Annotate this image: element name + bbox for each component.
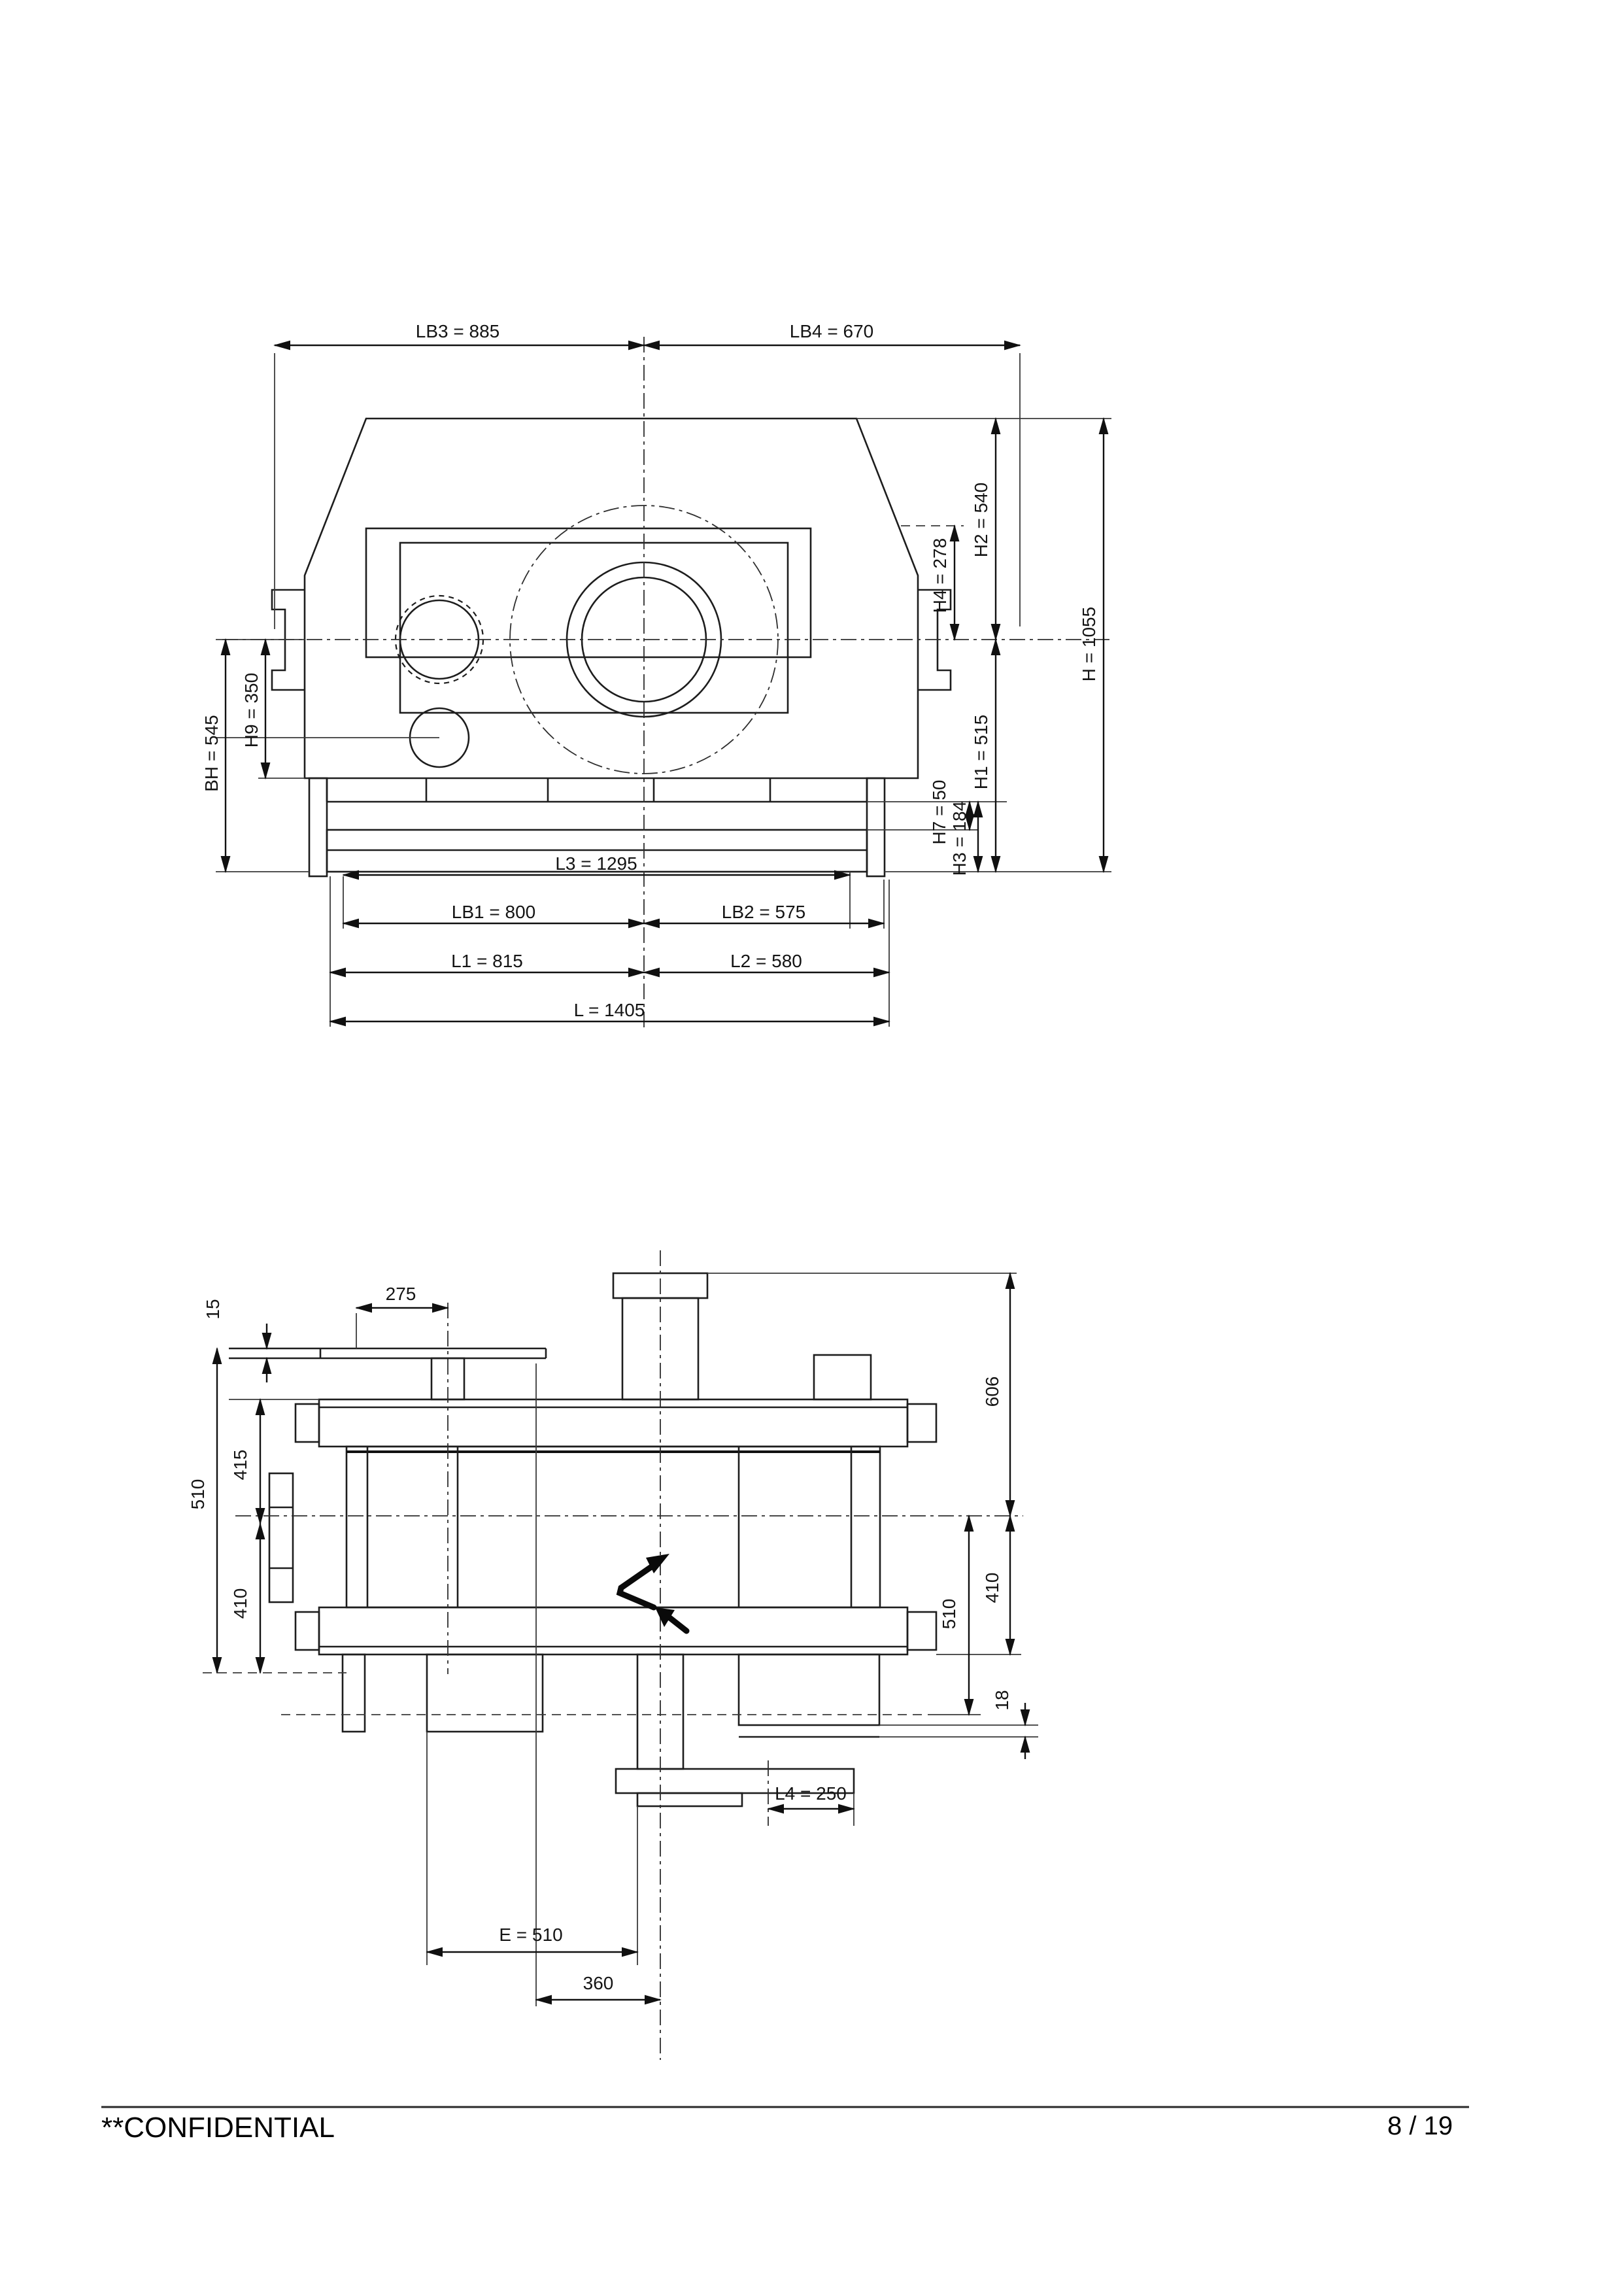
dim-bh-label: BH = 545 <box>201 715 222 792</box>
dim-h9-label: H9 = 350 <box>241 673 262 747</box>
plan-view: 275 15 510 415 410 606 410 510 18 L4 = 2… <box>188 1250 1038 2060</box>
rotation-arrow-icon <box>620 1554 686 1631</box>
plan-view-dimension-lines <box>217 1273 1025 2000</box>
dim-410-left-label: 410 <box>230 1588 250 1619</box>
left-bearing-cap <box>269 1473 293 1602</box>
dim-360-label: 360 <box>583 1973 614 1993</box>
page-number: 8 / 19 <box>1387 2112 1453 2140</box>
front-view-linework <box>216 337 1111 1032</box>
scanned-drawing-page: LB3 = 885 LB4 = 670 H4 = 278 H2 = 540 H1… <box>0 0 1624 2296</box>
dim-l3-label: L3 = 1295 <box>555 853 637 874</box>
dim-18-label: 18 <box>992 1690 1012 1710</box>
dim-l1-label: L1 = 815 <box>451 951 523 971</box>
plan-view-dimension-labels: 275 15 510 415 410 606 410 510 18 L4 = 2… <box>188 1284 1012 1993</box>
dim-15-label: 15 <box>203 1299 223 1319</box>
dim-h-label: H = 1055 <box>1079 607 1099 681</box>
dim-606-label: 606 <box>982 1377 1002 1407</box>
housing-outline <box>305 419 918 778</box>
plan-view-extension-lines <box>203 1313 1038 1737</box>
dim-l4-label: L4 = 250 <box>775 1783 847 1804</box>
dim-275-label: 275 <box>386 1284 416 1304</box>
dim-h7-label: H7 = 50 <box>929 780 949 845</box>
dim-e-label: E = 510 <box>499 1925 562 1945</box>
dim-h1-label: H1 = 515 <box>971 715 991 789</box>
dim-h2-label: H2 = 540 <box>971 483 991 557</box>
dim-l2-label: L2 = 580 <box>730 951 802 971</box>
dim-h3-label: H3 = 184 <box>949 801 970 876</box>
plan-body <box>347 1447 880 1607</box>
dim-lb4-label: LB4 = 670 <box>790 321 873 341</box>
left-foot <box>427 1654 543 1732</box>
dim-510-right-label: 510 <box>939 1599 959 1630</box>
dim-lb1-label: LB1 = 800 <box>452 902 535 922</box>
dim-h4-label: H4 = 278 <box>930 538 950 613</box>
dim-lb2-label: LB2 = 575 <box>722 902 805 922</box>
dim-410-right-label: 410 <box>982 1573 1002 1603</box>
dim-415-label: 415 <box>230 1450 250 1481</box>
footer: **CONFIDENTIAL 8 / 19 <box>101 2107 1469 2144</box>
front-view-dimension-labels: LB3 = 885 LB4 = 670 H4 = 278 H2 = 540 H1… <box>201 321 1099 1020</box>
front-view: LB3 = 885 LB4 = 670 H4 = 278 H2 = 540 H1… <box>201 321 1111 1032</box>
dim-l-label: L = 1405 <box>574 1000 645 1020</box>
plan-view-linework <box>229 1250 1023 2060</box>
drawing-canvas: LB3 = 885 LB4 = 670 H4 = 278 H2 = 540 H1… <box>0 0 1624 2296</box>
dim-510-left-label: 510 <box>188 1479 208 1510</box>
confidential-marking: **CONFIDENTIAL <box>101 2112 335 2144</box>
front-view-dimension-lines <box>226 345 1104 1021</box>
front-view-extension-lines <box>216 353 1111 1027</box>
dim-lb3-label: LB3 = 885 <box>416 321 499 341</box>
